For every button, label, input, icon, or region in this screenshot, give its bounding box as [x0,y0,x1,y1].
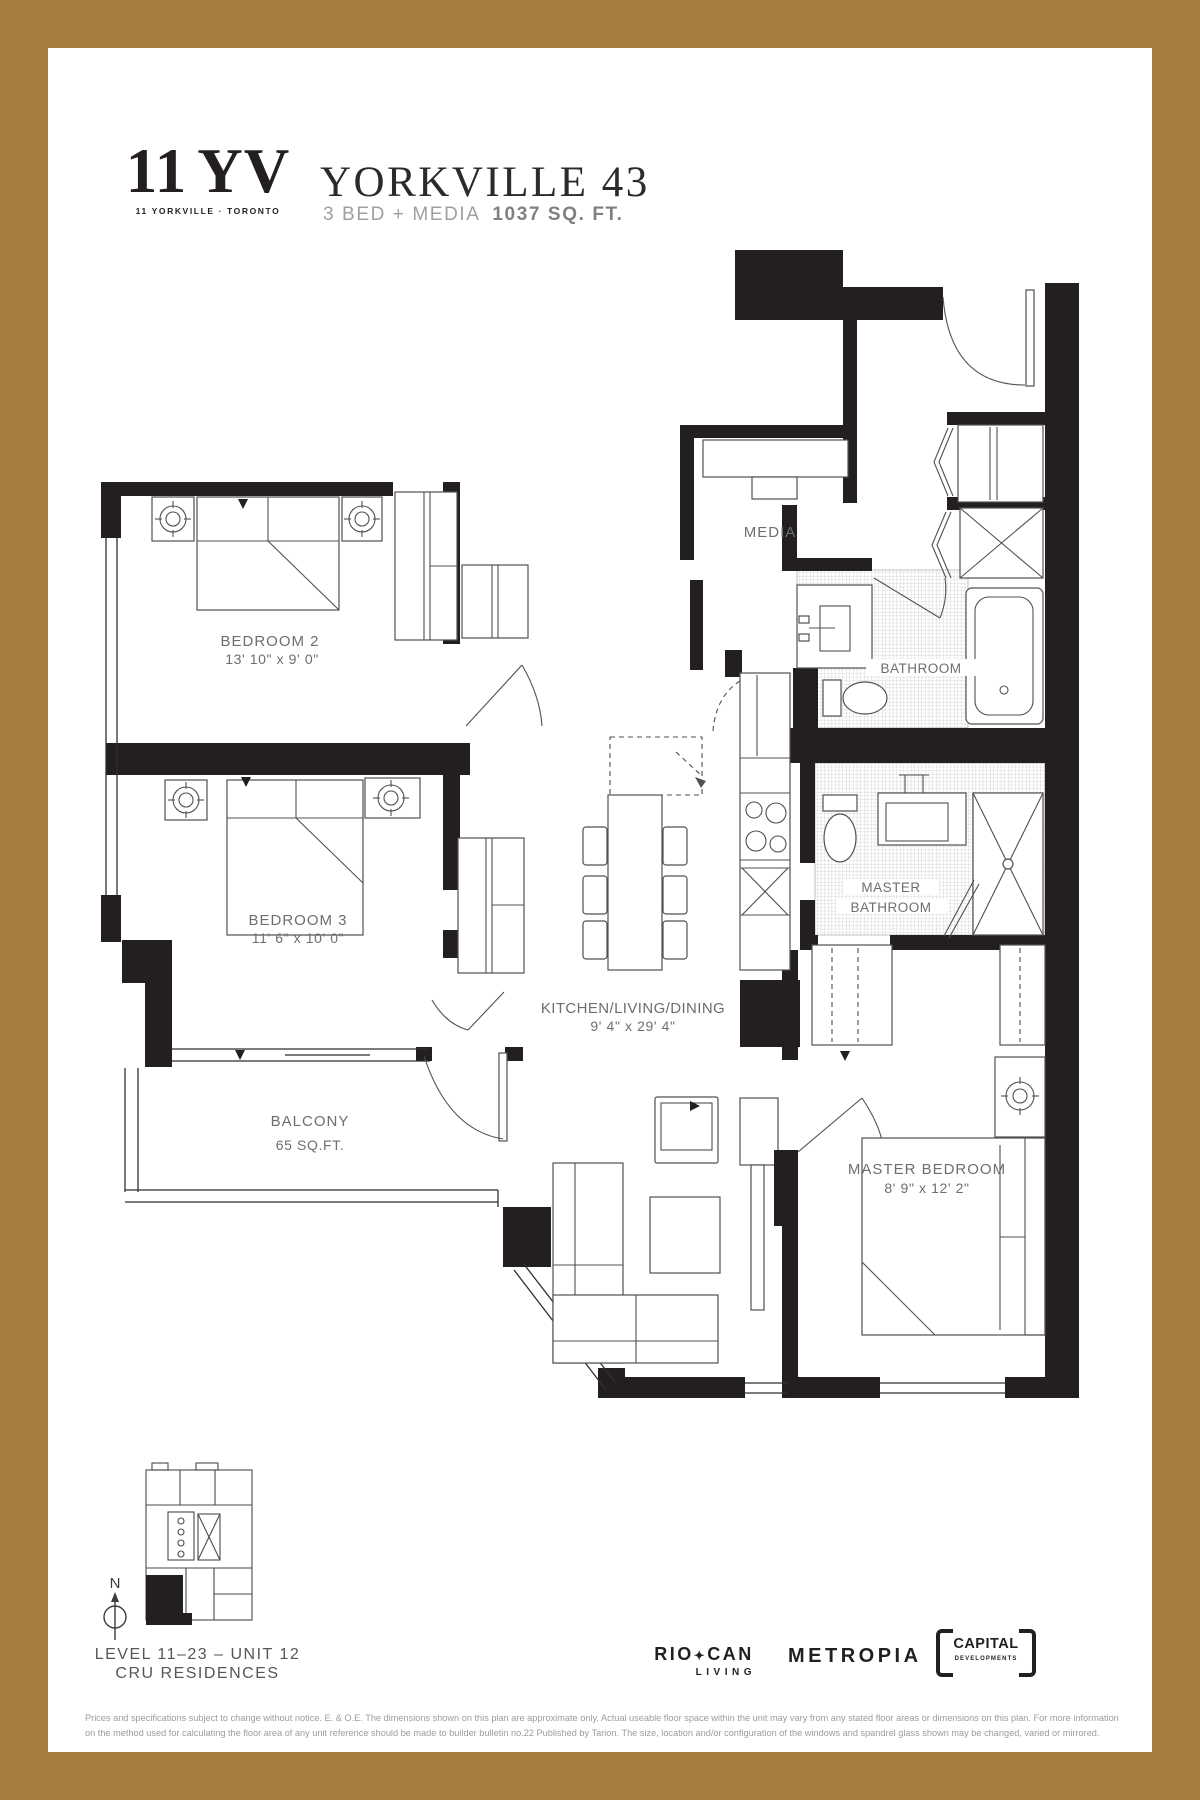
room-dims-bedroom3: 11' 6" x 10' 0" [252,930,345,946]
pantry-closet [462,565,528,638]
room-dims-balcony: 65 SQ.FT. [276,1137,344,1153]
area-label: 1037 SQ. FT. [492,204,623,225]
coffee-table [650,1197,720,1273]
plan-type-label: 3 BED + MEDIA [323,204,480,225]
room-label-balcony: BALCONY [271,1113,350,1130]
capital-label: CAPITAL [949,1636,1023,1652]
balcony-door-arc [424,1056,503,1139]
riocan-can: CAN [707,1644,754,1664]
bedroom3-door-leaf [468,992,504,1030]
floor-plan: BEDROOM 2 13' 10" x 9' 0" BEDROOM 3 11' … [90,240,1090,1410]
brand-logo-letters: YV [197,142,290,200]
room-label-kitchen: KITCHEN/LIVING/DINING [541,1000,725,1017]
console-table [740,1098,778,1165]
room-label-bedroom2: BEDROOM 2 [220,633,319,650]
tv [774,1150,783,1226]
room-dims-kitchen: 9' 4" x 29' 4" [590,1018,675,1034]
disclaimer: Prices and specifications subject to cha… [85,1711,1120,1741]
island-dashed [610,737,702,795]
fridge-swing-dashed [713,681,740,731]
brand-logo: 11 YV 11 YORKVILLE · TORONTO [133,142,283,216]
hall-linen-closet [458,838,524,973]
level-unit-label: LEVEL 11–23 – UNIT 12 [85,1645,310,1664]
entry-door-arc [943,297,1025,385]
disclaimer-line-1: Prices and specifications subject to cha… [85,1711,1120,1726]
room-label-bedroom3: BEDROOM 3 [248,912,347,929]
master-closet-left [812,945,892,1045]
key-plan-unit-highlight [146,1575,192,1625]
master-toilet [823,795,857,811]
media-desk [703,440,848,499]
key-plan: N [85,1455,275,1645]
room-label-master-bathroom-2: BATHROOM [851,900,932,915]
bedroom2-closet [395,492,457,640]
disclaimer-line-2: on the method used for calculating the f… [85,1726,1120,1741]
bathroom-vanity [797,585,872,668]
riocan-living-logo: RIO✦CAN LIVING [640,1644,768,1678]
room-label-master-bedroom: MASTER BEDROOM [848,1161,1006,1178]
developments-label: DEVELOPMENTS [949,1656,1023,1662]
brand-tagline: 11 YORKVILLE · TORONTO [133,206,283,216]
key-plan-labels: LEVEL 11–23 – UNIT 12 CRU RESIDENCES [85,1645,310,1683]
dining-set [583,795,687,970]
master-closet-right [1000,945,1045,1045]
north-label: N [110,1575,121,1592]
riocan-wordmark: RIO✦CAN [640,1644,768,1665]
room-label-master-bathroom-1: MASTER [861,880,920,895]
living-furniture [553,1097,783,1363]
riocan-living-label: LIVING [640,1667,768,1678]
balcony-door-leaf [499,1053,507,1141]
master-bedroom-furniture [862,1057,1045,1335]
brand-logo-number: 11 [126,142,188,200]
bathtub [966,588,1043,724]
residence-label: CRU RESIDENCES [85,1664,310,1683]
bathroom-toilet [823,680,841,716]
capital-developments-logo: CAPITAL DEVELOPMENTS [936,1629,1036,1677]
laundry-closet [932,508,1043,578]
tv-bench [751,1165,764,1310]
master-bedroom-door-leaf [798,1098,862,1152]
page-title: YORKVILLE 43 [320,158,650,207]
bedroom2-furniture [152,497,382,610]
armchair [655,1097,718,1163]
bedroom3-door-arc [432,1000,468,1030]
bedroom2-door-leaf [466,665,522,726]
floorplan-sheet: 11 YV 11 YORKVILLE · TORONTO YORKVILLE 4… [0,0,1200,1800]
room-label-bathroom: BATHROOM [881,661,962,676]
master-nightstand [995,1057,1045,1137]
page-subtitle: 3 BED + MEDIA 1037 SQ. FT. [323,204,624,226]
entry-door-leaf [1026,290,1034,386]
brand-logo-wordmark: 11 YV [133,142,283,200]
riocan-rio: RIO [654,1644,694,1664]
room-label-media: MEDIA [744,524,797,541]
north-indicator: N [104,1575,126,1640]
room-dims-bedroom2: 13' 10" x 9' 0" [225,651,319,667]
maple-leaf-icon: ✦ [694,1648,707,1663]
metropia-logo: METROPIA [788,1645,922,1668]
foyer-closet [934,425,1043,502]
master-vanity [878,793,966,845]
room-dims-master-bedroom: 8' 9" x 12' 2" [884,1180,969,1196]
bedroom2-door-arc [522,665,542,726]
